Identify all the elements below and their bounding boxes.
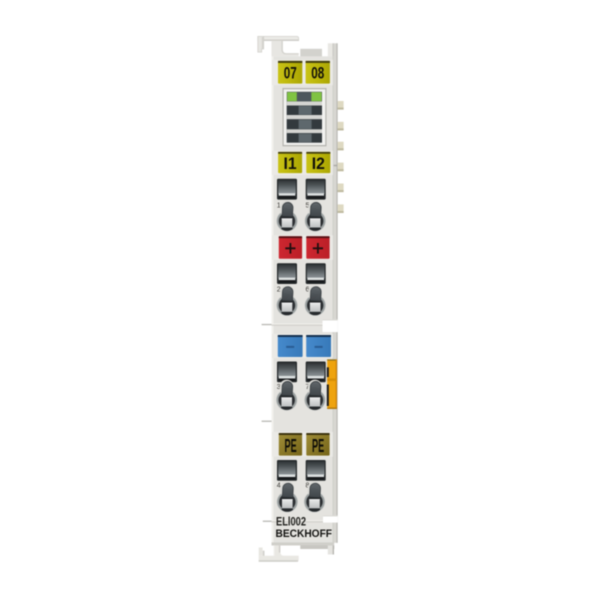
svg-text:I2: I2 xyxy=(312,154,325,173)
svg-text:PE: PE xyxy=(285,435,297,456)
svg-text:I1: I1 xyxy=(284,154,297,173)
svg-text:PE: PE xyxy=(312,435,324,456)
svg-text:4: 4 xyxy=(277,483,281,490)
svg-text:07: 07 xyxy=(284,64,297,83)
svg-text:08: 08 xyxy=(311,64,324,83)
svg-text:ELl002: ELl002 xyxy=(276,516,306,529)
svg-text:BECKHOFF: BECKHOFF xyxy=(276,528,333,540)
